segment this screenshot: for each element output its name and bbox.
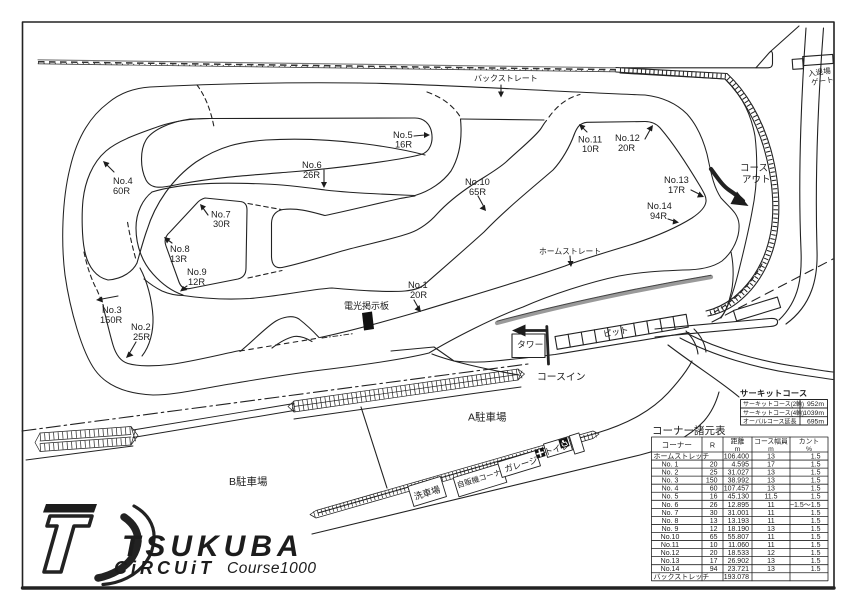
svg-text:10R: 10R — [582, 144, 599, 154]
svg-text:No.10: No.10 — [465, 177, 490, 187]
svg-text:No.10: No.10 — [661, 534, 680, 541]
svg-text:25: 25 — [710, 470, 718, 477]
svg-text:タワー: タワー — [517, 340, 543, 350]
svg-text:13: 13 — [710, 518, 718, 525]
svg-text:No.12: No.12 — [661, 550, 680, 557]
svg-text:107.457: 107.457 — [724, 486, 749, 493]
svg-text:CiRCUiT: CiRCUiT — [114, 558, 215, 578]
svg-text:16R: 16R — [395, 140, 412, 150]
svg-text:45.130: 45.130 — [728, 494, 750, 501]
svg-text:11: 11 — [767, 518, 774, 525]
svg-text:4.595: 4.595 — [731, 462, 749, 469]
svg-text:31.001: 31.001 — [728, 510, 750, 517]
svg-text:No.5: No.5 — [393, 130, 413, 140]
svg-text:13R: 13R — [170, 254, 187, 264]
svg-text:26: 26 — [710, 502, 718, 509]
svg-text:No.1: No.1 — [408, 280, 428, 290]
svg-text:11: 11 — [767, 542, 774, 549]
svg-text:No.8: No.8 — [170, 244, 190, 254]
svg-text:11: 11 — [767, 510, 774, 517]
svg-text:No.12: No.12 — [615, 133, 640, 143]
svg-text:26.902: 26.902 — [728, 558, 750, 565]
svg-text:コース: コース — [740, 163, 768, 174]
svg-text:952m: 952m — [807, 401, 824, 408]
svg-text:ホームストレッチ: ホームストレッチ — [654, 452, 710, 460]
svg-text:アウト: アウト — [742, 175, 771, 186]
svg-text:No.7: No.7 — [211, 210, 231, 220]
svg-text:12.895: 12.895 — [728, 502, 750, 509]
svg-text:No. 9: No. 9 — [662, 526, 679, 533]
svg-text:94R: 94R — [650, 211, 667, 221]
svg-text:コース幅員: コース幅員 — [754, 437, 788, 446]
svg-text:No.4: No.4 — [113, 176, 133, 186]
svg-text:1.5: 1.5 — [811, 558, 821, 565]
svg-text:B駐車場: B駐車場 — [229, 475, 268, 488]
svg-text:20: 20 — [710, 550, 718, 557]
svg-text:13.193: 13.193 — [728, 518, 750, 525]
svg-text:1.5: 1.5 — [811, 510, 821, 517]
svg-text:カント: カント — [799, 438, 819, 446]
svg-text:31.027: 31.027 — [728, 470, 750, 477]
svg-text:12: 12 — [710, 526, 718, 533]
svg-text:1.5: 1.5 — [811, 542, 821, 549]
svg-text:106.400: 106.400 — [724, 453, 749, 460]
svg-text:60: 60 — [710, 486, 718, 493]
svg-text:サーキットコース: サーキットコース — [740, 389, 808, 398]
svg-text:オーバルコース延長: オーバルコース延長 — [743, 417, 797, 425]
svg-text:20: 20 — [710, 462, 718, 469]
svg-text:No.14: No.14 — [647, 201, 672, 211]
svg-text:バックストレート: バックストレート — [474, 74, 538, 83]
svg-text:11.5: 11.5 — [764, 494, 777, 501]
svg-text:No.3: No.3 — [102, 305, 122, 315]
svg-text:ゲート: ゲート — [811, 75, 835, 87]
svg-text:No.11: No.11 — [661, 542, 679, 549]
svg-text:18.190: 18.190 — [728, 526, 750, 533]
svg-text:38.992: 38.992 — [728, 478, 750, 485]
svg-text:150: 150 — [706, 478, 718, 485]
svg-text:No.14: No.14 — [661, 566, 680, 573]
svg-text:150R: 150R — [100, 315, 123, 325]
svg-text:17: 17 — [710, 558, 718, 565]
svg-text:No.13: No.13 — [664, 175, 689, 185]
svg-text:サーキットコース(2輪): サーキットコース(2輪) — [743, 400, 804, 408]
svg-text:No. 8: No. 8 — [662, 518, 679, 525]
svg-text:11: 11 — [767, 534, 774, 541]
svg-text:10: 10 — [710, 542, 718, 549]
svg-text:Course1000: Course1000 — [227, 560, 316, 577]
svg-text:1.5: 1.5 — [811, 518, 821, 525]
svg-text:−1.5〜1.5: −1.5〜1.5 — [790, 502, 821, 509]
svg-text:17R: 17R — [668, 185, 685, 195]
svg-text:No. 4: No. 4 — [662, 486, 679, 493]
svg-text:23.721: 23.721 — [728, 566, 750, 573]
svg-text:No.6: No.6 — [302, 160, 322, 170]
svg-text:No. 6: No. 6 — [662, 502, 679, 509]
svg-text:No. 5: No. 5 — [662, 494, 679, 501]
svg-text:No. 7: No. 7 — [662, 510, 679, 517]
svg-text:13: 13 — [767, 453, 775, 460]
svg-text:1.5: 1.5 — [811, 462, 821, 469]
svg-text:65R: 65R — [469, 187, 486, 197]
svg-text:55.807: 55.807 — [728, 534, 750, 541]
svg-text:26R: 26R — [303, 170, 320, 180]
svg-text:13: 13 — [767, 526, 775, 533]
svg-text:20R: 20R — [618, 143, 635, 153]
svg-text:A駐車場: A駐車場 — [468, 411, 507, 424]
svg-text:1039m: 1039m — [803, 410, 824, 417]
svg-text:ピット: ピット — [602, 325, 629, 339]
svg-text:1.5: 1.5 — [811, 494, 821, 501]
svg-text:No. 3: No. 3 — [662, 478, 679, 485]
svg-text:m: m — [735, 446, 741, 453]
svg-text:No.9: No.9 — [187, 267, 207, 277]
svg-text:m: m — [768, 446, 774, 453]
svg-text:1.5: 1.5 — [811, 566, 821, 573]
svg-text:R: R — [710, 441, 715, 450]
svg-text:18.533: 18.533 — [728, 550, 750, 557]
svg-text:11: 11 — [767, 502, 774, 509]
svg-text:No.13: No.13 — [661, 558, 680, 565]
svg-text:1.5: 1.5 — [811, 453, 821, 460]
svg-text:30R: 30R — [213, 219, 230, 229]
svg-text:バックストレッチ: バックストレッチ — [654, 573, 710, 581]
svg-text:No.11: No.11 — [578, 135, 602, 145]
svg-text:695m: 695m — [807, 418, 824, 425]
svg-text:13: 13 — [767, 478, 775, 485]
svg-text:No. 1: No. 1 — [662, 462, 679, 469]
svg-text:コースイン: コースイン — [537, 372, 586, 383]
svg-text:60R: 60R — [113, 186, 130, 196]
svg-text:11.060: 11.060 — [728, 542, 749, 549]
svg-text:30: 30 — [710, 510, 718, 517]
svg-text:193.078: 193.078 — [724, 574, 749, 581]
svg-text:1.5: 1.5 — [811, 526, 821, 533]
svg-text:コーナー諸元表: コーナー諸元表 — [652, 424, 726, 437]
svg-text:94: 94 — [710, 566, 718, 573]
svg-text:20R: 20R — [410, 290, 427, 300]
svg-text:ホームストレート: ホームストレート — [539, 247, 601, 256]
svg-text:13: 13 — [767, 486, 775, 493]
svg-text:サーキットコース(4輪): サーキットコース(4輪) — [743, 409, 804, 417]
svg-text:13: 13 — [767, 470, 775, 477]
svg-text:13: 13 — [767, 558, 775, 565]
svg-text:17: 17 — [767, 462, 775, 469]
svg-text:13: 13 — [767, 566, 775, 573]
svg-text:1.5: 1.5 — [811, 534, 821, 541]
svg-text:電光掲示板: 電光掲示板 — [344, 300, 389, 311]
svg-text:16: 16 — [710, 494, 718, 501]
svg-text:1.5: 1.5 — [811, 550, 821, 557]
svg-text:No.2: No.2 — [131, 322, 151, 332]
svg-text:12R: 12R — [188, 277, 205, 287]
svg-text:コーナー: コーナー — [662, 441, 692, 450]
svg-text:65: 65 — [710, 534, 718, 541]
svg-text:No. 2: No. 2 — [662, 470, 679, 477]
svg-text:1.5: 1.5 — [811, 486, 821, 493]
svg-text:1.5: 1.5 — [811, 470, 821, 477]
svg-text:1.5: 1.5 — [811, 478, 821, 485]
svg-text:%: % — [806, 446, 812, 453]
svg-text:25R: 25R — [133, 332, 150, 342]
svg-text:距離: 距離 — [731, 437, 745, 446]
svg-text:12: 12 — [767, 550, 775, 557]
